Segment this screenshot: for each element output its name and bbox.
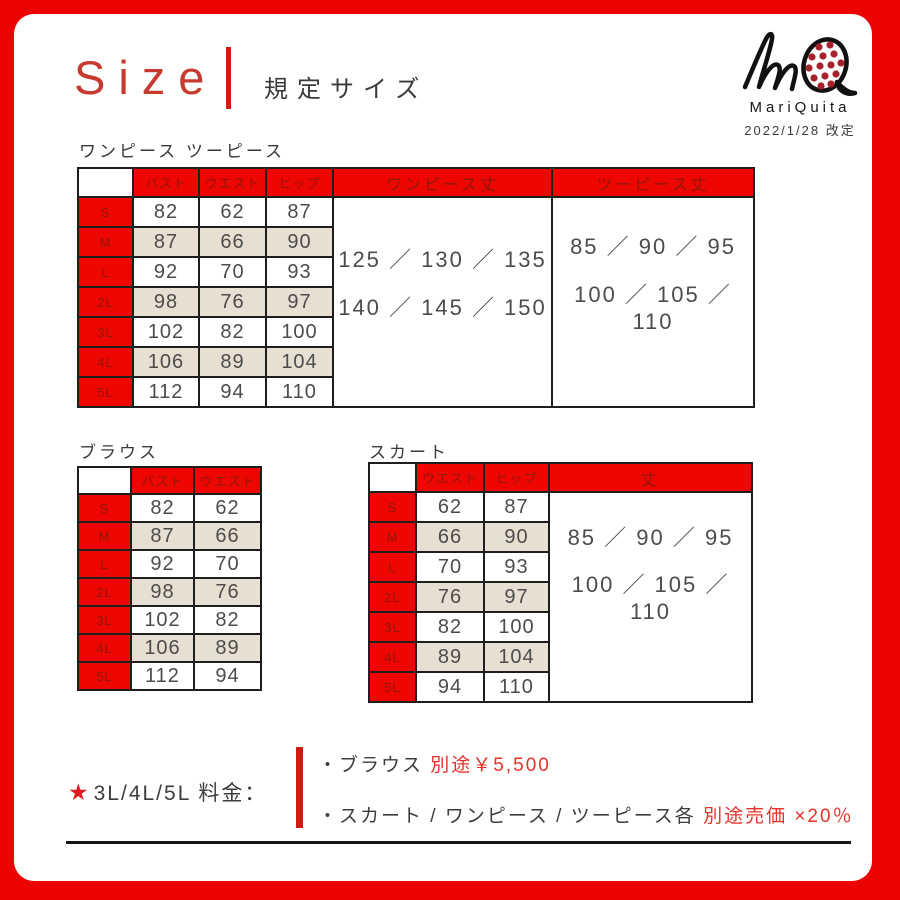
length-values: 85 ／ 90 ／ 95100 ／ 105 ／ 110 (553, 229, 753, 335)
bottom-rule (66, 841, 851, 844)
size-row-label: S (78, 197, 133, 227)
measurement-cell: 98 (133, 287, 199, 317)
measurement-cell: 92 (133, 257, 199, 287)
measurement-cell: 70 (194, 550, 261, 578)
size-row-label: 3L (78, 317, 133, 347)
size-row-label: 2L (369, 582, 416, 612)
measurement-cell: 62 (416, 492, 484, 522)
length-values: 125 ／ 130 ／ 135140 ／ 145 ／ 150 (334, 242, 551, 322)
measurement-cell: 89 (194, 634, 261, 662)
length-column-header: 丈 (549, 463, 752, 492)
measurement-cell: 87 (133, 227, 199, 257)
size-table: ウエストヒップ丈S628785 ／ 90 ／ 95100 ／ 105 ／ 110… (368, 462, 753, 703)
page-title: Size (74, 50, 217, 105)
measurement-cell: 76 (199, 287, 266, 317)
measurement-cell: 66 (416, 522, 484, 552)
measurement-cell: 104 (484, 642, 549, 672)
measurement-cell: 62 (194, 494, 261, 522)
size-row-label: M (369, 522, 416, 552)
column-header: ウエスト (194, 467, 261, 494)
size-row-label: 4L (369, 642, 416, 672)
table-row: 3L10282 (78, 606, 261, 634)
fee-item-prefix: ・ブラウス (318, 755, 430, 776)
size-row-label: 5L (78, 662, 131, 690)
measurement-cell: 94 (199, 377, 266, 407)
revision-date: 2022/1/28 改定 (722, 120, 878, 139)
length-line: 140 ／ 145 ／ 150 (338, 290, 547, 322)
size-row-label: S (78, 494, 131, 522)
size-row-label: 4L (78, 347, 133, 377)
length-values: 85 ／ 90 ／ 95100 ／ 105 ／ 110 (550, 520, 751, 625)
size-row-label: M (78, 522, 131, 550)
mariquita-logo-icon (737, 27, 863, 99)
measurement-cell: 100 (484, 612, 549, 642)
measurement-cell: 112 (131, 662, 194, 690)
measurement-cell: 82 (131, 494, 194, 522)
size-row-label: L (369, 552, 416, 582)
size-row-label: 5L (369, 672, 416, 702)
table-row: S628785 ／ 90 ／ 95100 ／ 105 ／ 110 (369, 492, 752, 522)
measurement-cell: 70 (199, 257, 266, 287)
size-row-label: L (78, 257, 133, 287)
table-row: L9270 (78, 550, 261, 578)
measurement-cell: 97 (266, 287, 333, 317)
measurement-cell: 93 (266, 257, 333, 287)
size-table: バストウエストS8262M8766L92702L98763L102824L106… (77, 466, 262, 691)
measurement-cell: 90 (484, 522, 549, 552)
size-table-skirt: ウエストヒップ丈S628785 ／ 90 ／ 95100 ／ 105 ／ 110… (368, 462, 753, 703)
measurement-cell: 87 (131, 522, 194, 550)
column-header: バスト (133, 168, 199, 197)
merged-length-cell: 85 ／ 90 ／ 95100 ／ 105 ／ 110 (552, 197, 754, 407)
table-row: 4L10689 (78, 634, 261, 662)
measurement-cell: 102 (133, 317, 199, 347)
fee-heading: ★ 3L/4L/5L 料金： (68, 777, 267, 807)
merged-length-cell: 85 ／ 90 ／ 95100 ／ 105 ／ 110 (549, 492, 752, 702)
measurement-cell: 82 (199, 317, 266, 347)
measurement-cell: 66 (194, 522, 261, 550)
measurement-cell: 66 (199, 227, 266, 257)
corner-cell (369, 463, 416, 492)
measurement-cell: 82 (416, 612, 484, 642)
size-row-label: 3L (78, 606, 131, 634)
size-chart-page: Size 規定サイズ MariQuita 2022/1/28 改定 ワンピース … (0, 0, 900, 900)
size-row-label: 5L (78, 377, 133, 407)
title-divider (226, 47, 231, 109)
length-line: 125 ／ 130 ／ 135 (338, 242, 547, 274)
size-row-label: M (78, 227, 133, 257)
measurement-cell: 89 (416, 642, 484, 672)
size-table-blouse: バストウエストS8262M8766L92702L98763L102824L106… (77, 466, 262, 691)
measurement-cell: 70 (416, 552, 484, 582)
fee-item-prefix: ・スカート / ワンピース / ツーピース各 (318, 806, 703, 827)
length-column-header: ツーピース丈 (552, 168, 754, 197)
measurement-cell: 76 (194, 578, 261, 606)
size-row-label: L (78, 550, 131, 578)
measurement-cell: 94 (416, 672, 484, 702)
measurement-cell: 93 (484, 552, 549, 582)
measurement-cell: 110 (266, 377, 333, 407)
measurement-cell: 92 (131, 550, 194, 578)
size-row-label: 2L (78, 287, 133, 317)
table-row: S8262 (78, 494, 261, 522)
fee-item-blouse: ・ブラウス 別途￥5,500 (318, 750, 551, 777)
fee-divider (296, 747, 303, 828)
measurement-cell: 87 (484, 492, 549, 522)
column-header: ヒップ (266, 168, 333, 197)
column-header: ウエスト (199, 168, 266, 197)
fee-item-highlight: 別途￥5,500 (430, 755, 551, 776)
size-row-label: S (369, 492, 416, 522)
measurement-cell: 102 (131, 606, 194, 634)
measurement-cell: 104 (266, 347, 333, 377)
size-table-onepiece-twopiece: バストウエストヒップワンピース丈ツーピース丈S826287125 ／ 130 ／… (77, 167, 755, 408)
table-row: S826287125 ／ 130 ／ 135140 ／ 145 ／ 15085 … (78, 197, 754, 227)
measurement-cell: 94 (194, 662, 261, 690)
logo-name: MariQuita (727, 99, 873, 116)
measurement-cell: 110 (484, 672, 549, 702)
size-row-label: 4L (78, 634, 131, 662)
measurement-cell: 82 (133, 197, 199, 227)
size-row-label: 2L (78, 578, 131, 606)
measurement-cell: 98 (131, 578, 194, 606)
size-row-label: 3L (369, 612, 416, 642)
section-label-skirt: スカート (369, 438, 449, 463)
column-header: ヒップ (484, 463, 549, 492)
corner-cell (78, 168, 133, 197)
measurement-cell: 106 (131, 634, 194, 662)
length-line: 85 ／ 90 ／ 95 (570, 229, 736, 261)
measurement-cell: 82 (194, 606, 261, 634)
measurement-cell: 87 (266, 197, 333, 227)
measurement-cell: 112 (133, 377, 199, 407)
column-header: ウエスト (416, 463, 484, 492)
measurement-cell: 90 (266, 227, 333, 257)
measurement-cell: 97 (484, 582, 549, 612)
length-line: 100 ／ 105 ／ 110 (553, 277, 753, 335)
length-column-header: ワンピース丈 (333, 168, 552, 197)
fee-item-highlight: 別途売価 ×20％ (703, 806, 854, 827)
measurement-cell: 62 (199, 197, 266, 227)
measurement-cell: 89 (199, 347, 266, 377)
table-row: 2L9876 (78, 578, 261, 606)
corner-cell (78, 467, 131, 494)
merged-length-cell: 125 ／ 130 ／ 135140 ／ 145 ／ 150 (333, 197, 552, 407)
section-label-onepiece-twopiece: ワンピース ツーピース (79, 137, 285, 162)
section-label-blouse: ブラウス (79, 438, 159, 463)
fee-heading-label: 3L/4L/5L 料金： (94, 777, 268, 807)
page-subtitle: 規定サイズ (264, 69, 428, 104)
length-line: 85 ／ 90 ／ 95 (568, 520, 734, 552)
measurement-cell: 100 (266, 317, 333, 347)
table-row: 5L11294 (78, 662, 261, 690)
length-line: 100 ／ 105 ／ 110 (550, 567, 751, 625)
fee-item-skirt-onepiece-twopiece: ・スカート / ワンピース / ツーピース各 別途売価 ×20％ (318, 801, 854, 828)
measurement-cell: 106 (133, 347, 199, 377)
table-row: M8766 (78, 522, 261, 550)
column-header: バスト (131, 467, 194, 494)
size-table: バストウエストヒップワンピース丈ツーピース丈S826287125 ／ 130 ／… (77, 167, 755, 408)
measurement-cell: 76 (416, 582, 484, 612)
star-icon: ★ (68, 781, 91, 804)
